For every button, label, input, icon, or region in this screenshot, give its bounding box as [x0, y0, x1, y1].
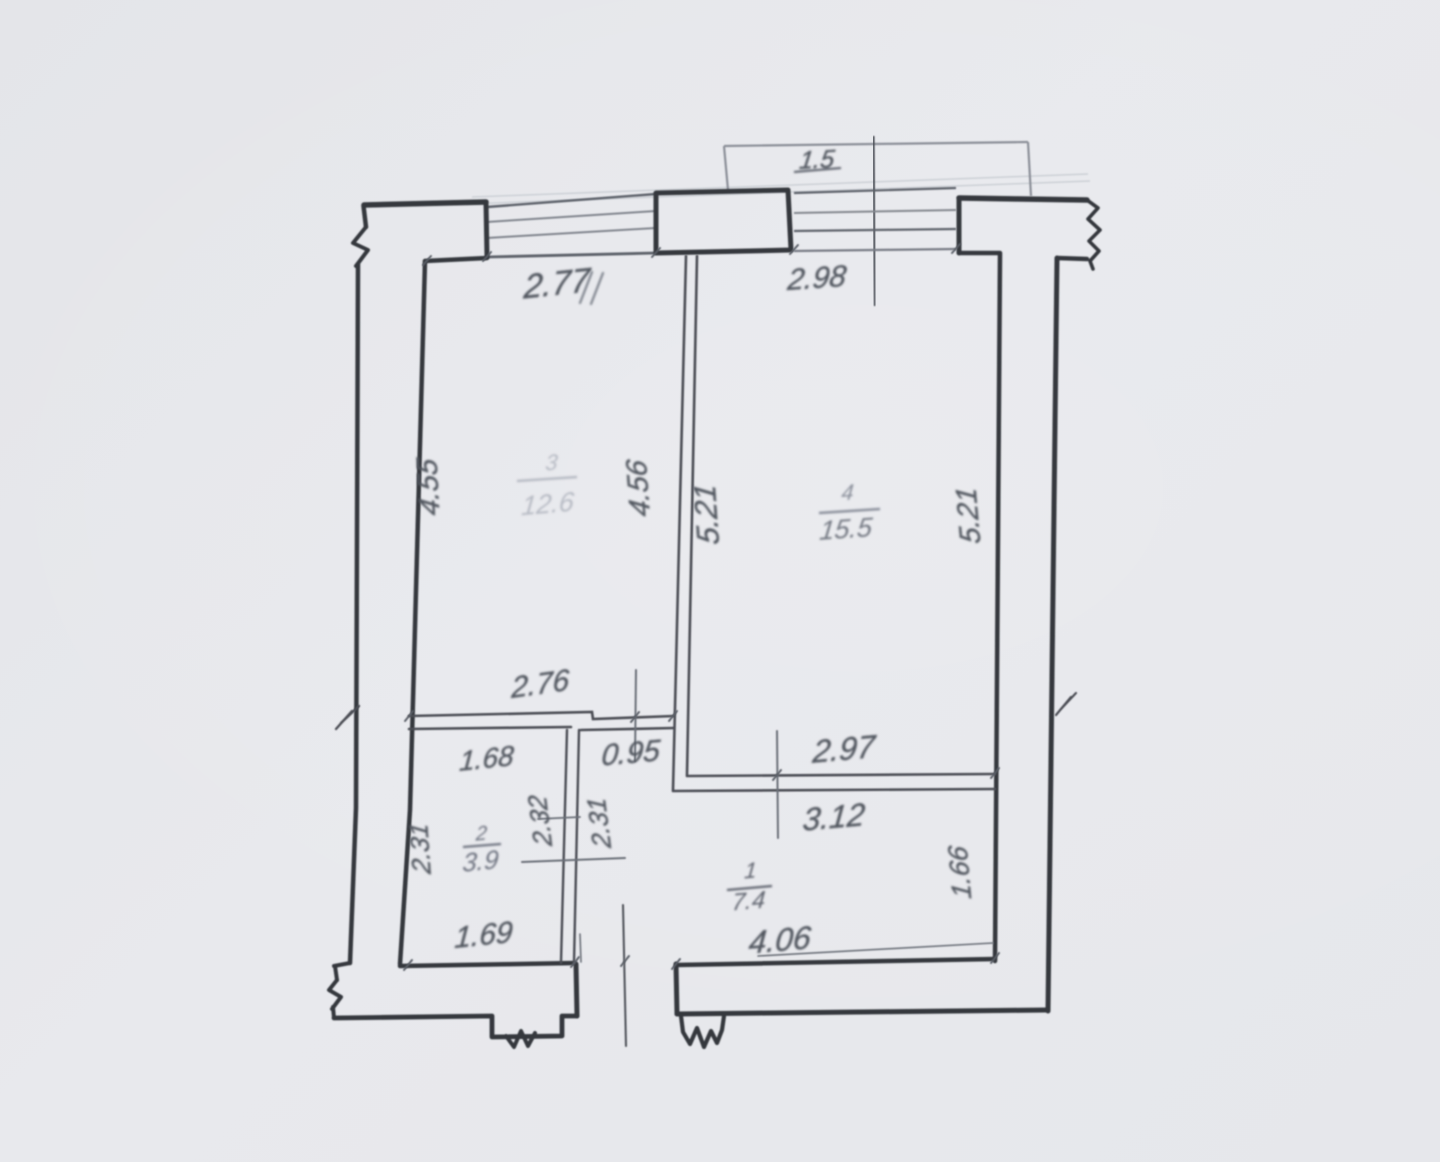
svg-text:2.31: 2.31: [403, 821, 437, 876]
svg-text:2.76: 2.76: [510, 664, 570, 706]
svg-text:5.21: 5.21: [950, 486, 987, 545]
svg-text:4.06: 4.06: [747, 919, 812, 961]
svg-text:12.6: 12.6: [520, 486, 576, 522]
svg-text:4.56: 4.56: [621, 457, 657, 517]
svg-text:1: 1: [743, 857, 757, 883]
svg-text:2.98: 2.98: [785, 260, 848, 297]
svg-text:7.4: 7.4: [731, 886, 767, 916]
svg-text:3: 3: [544, 449, 559, 475]
svg-text:0.95: 0.95: [600, 734, 661, 772]
svg-text:2.31: 2.31: [581, 797, 617, 850]
svg-text:2.32: 2.32: [522, 794, 559, 847]
svg-text:4: 4: [840, 479, 854, 505]
svg-text:4.55: 4.55: [411, 456, 446, 517]
svg-text:1.69: 1.69: [453, 916, 514, 955]
svg-text:1.68: 1.68: [458, 739, 515, 777]
svg-text:3.12: 3.12: [801, 796, 866, 838]
svg-text:1.66: 1.66: [942, 844, 978, 900]
svg-text:15.5: 15.5: [818, 511, 875, 546]
svg-text:5.21: 5.21: [687, 482, 726, 546]
svg-text:3.9: 3.9: [462, 844, 500, 878]
svg-text:2.97: 2.97: [810, 728, 877, 770]
svg-text:2: 2: [474, 822, 488, 845]
